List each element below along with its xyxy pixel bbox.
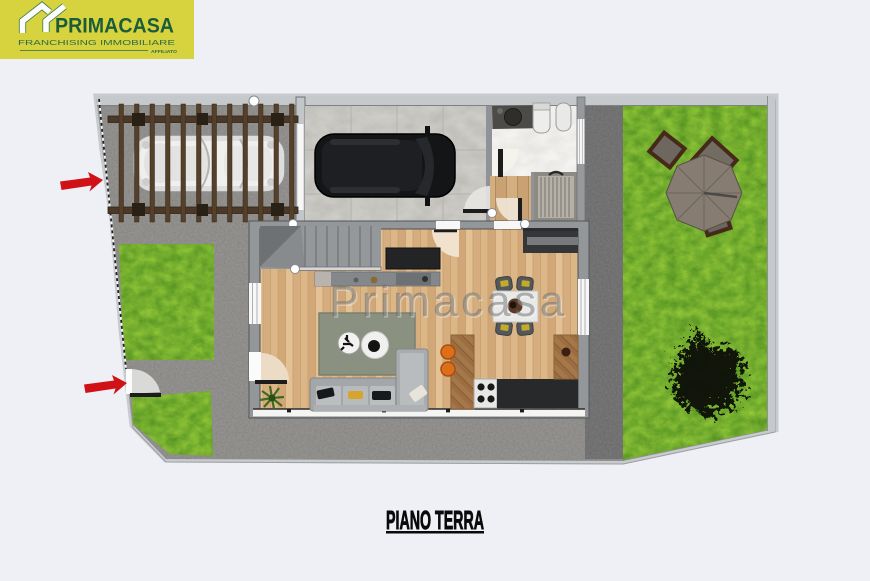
svg-text:AFFILIATO: AFFILIATO [151, 49, 178, 54]
svg-text:Primacasa: Primacasa [329, 277, 565, 326]
svg-text:FRANCHISING IMMOBILIARE: FRANCHISING IMMOBILIARE [18, 40, 176, 47]
svg-text:PRIMACASA: PRIMACASA [55, 15, 174, 38]
svg-text:PIANO TERRA: PIANO TERRA [386, 505, 484, 535]
